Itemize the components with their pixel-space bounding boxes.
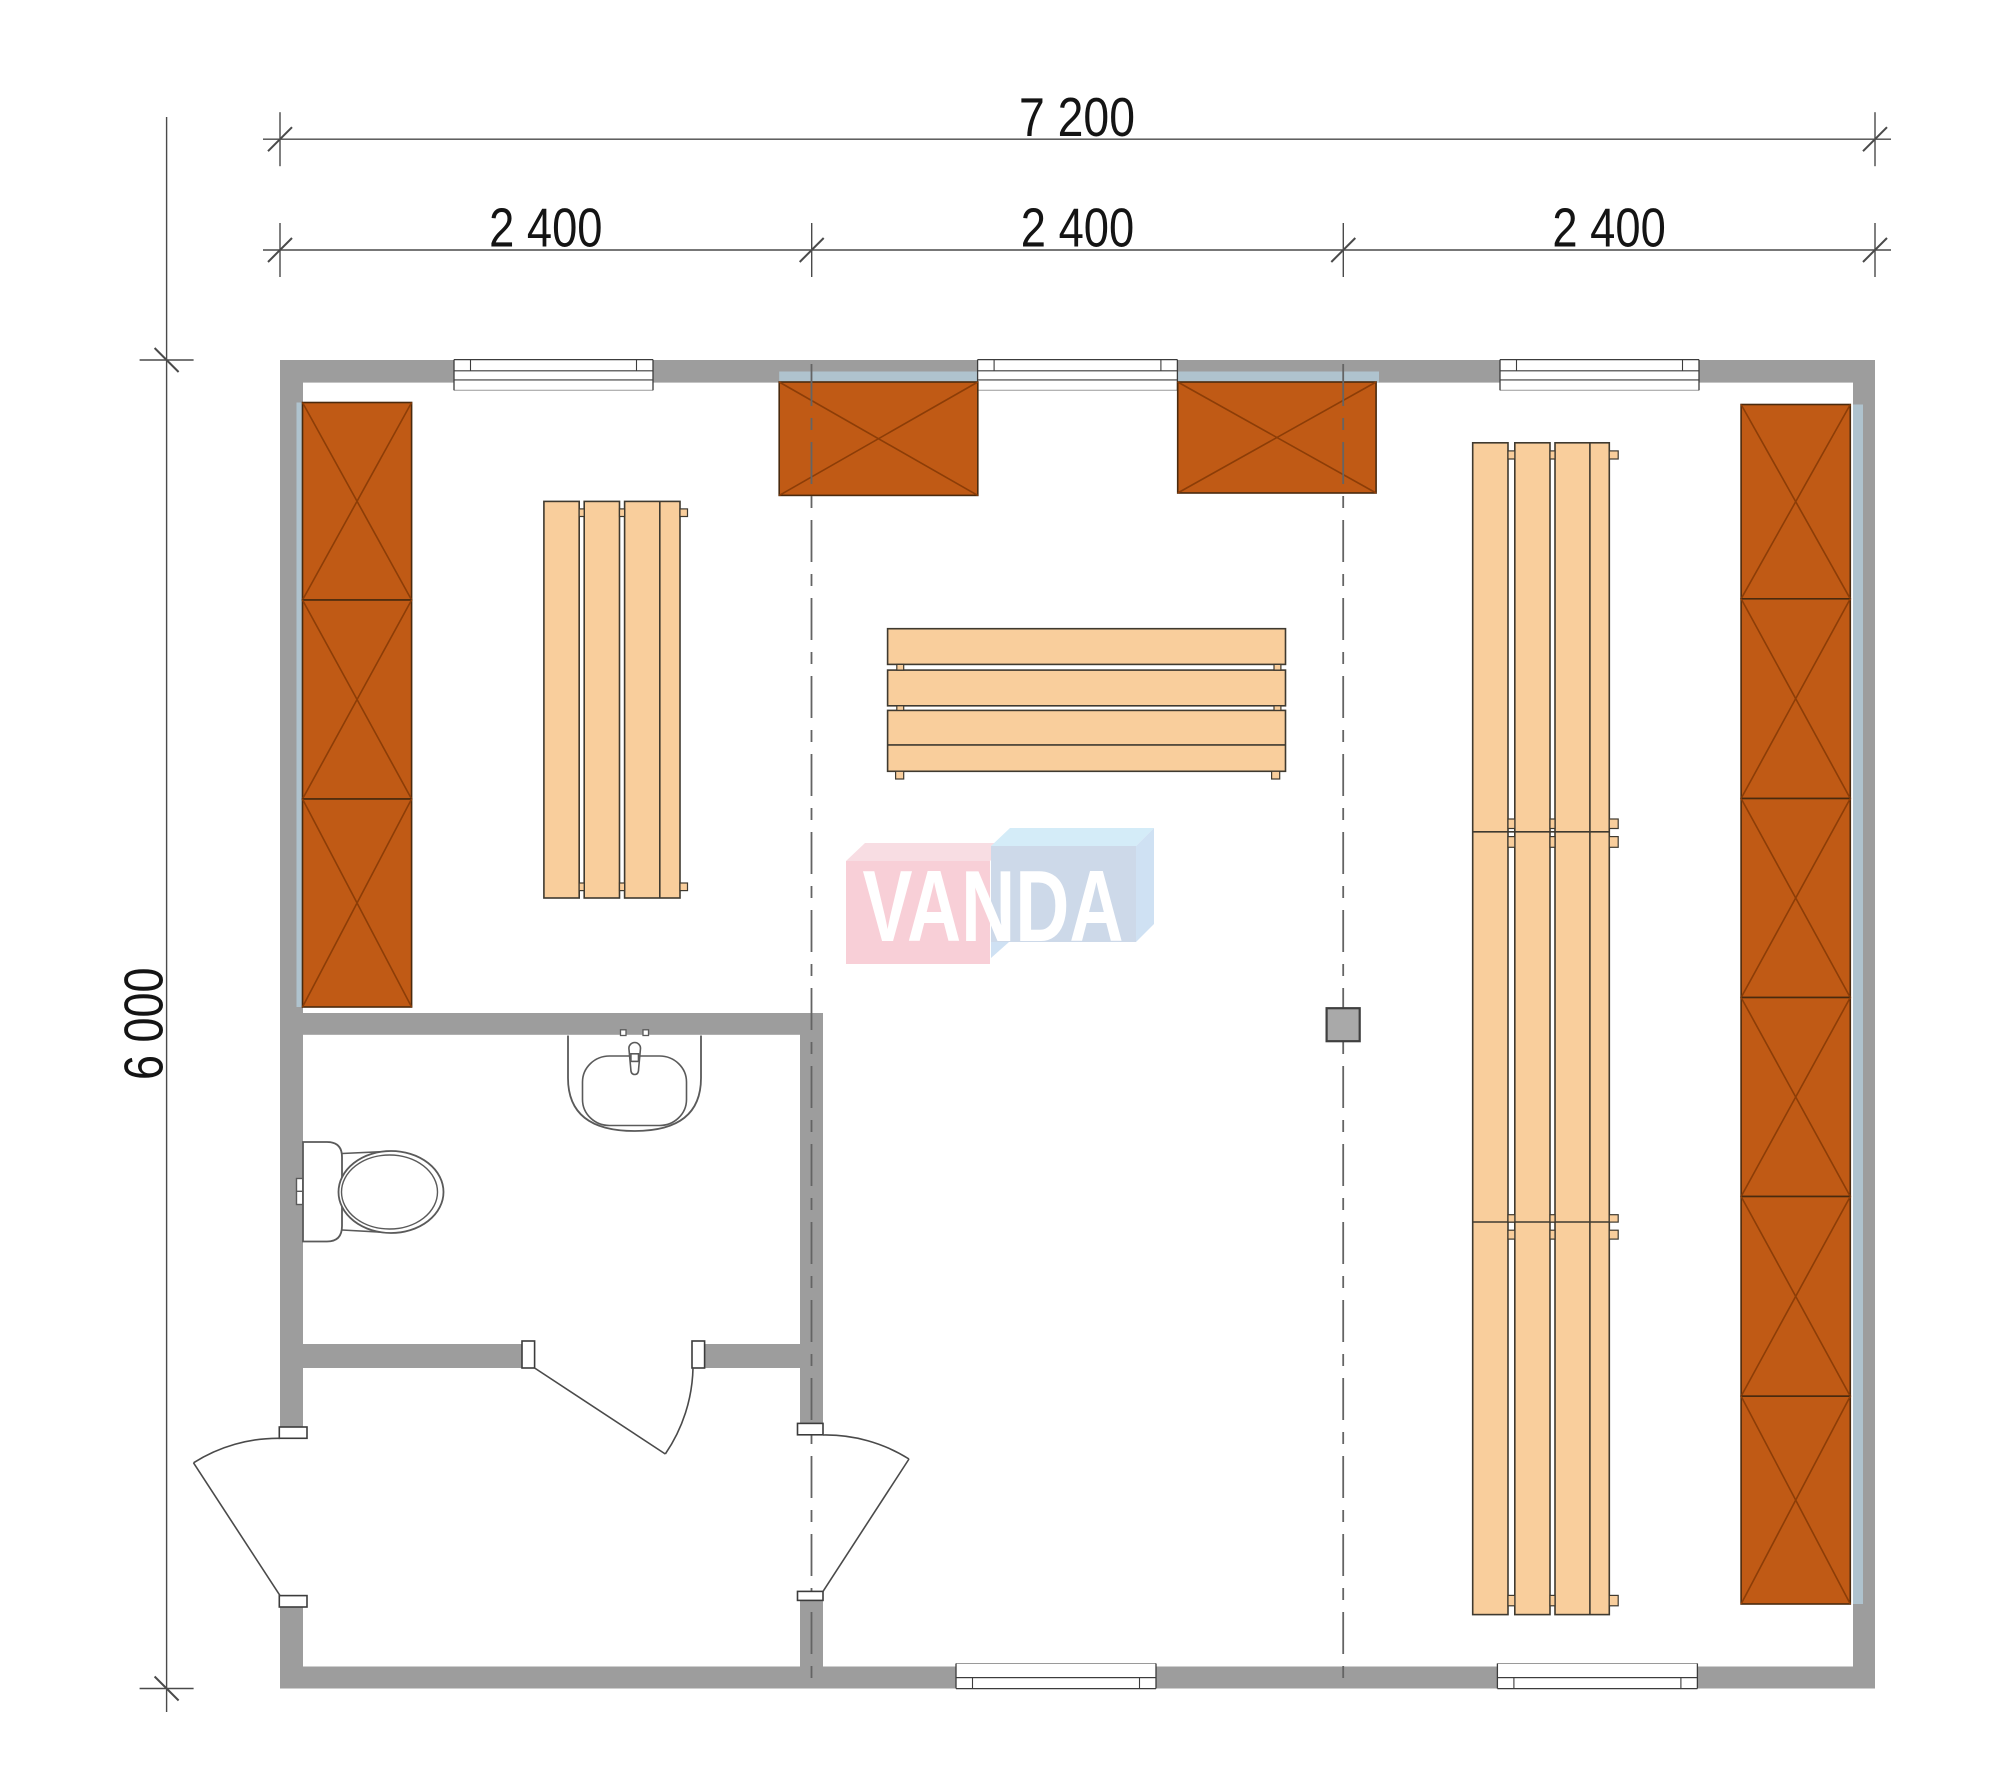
svg-text:VANDA: VANDA (863, 851, 1124, 963)
svg-text:2 400: 2 400 (1021, 197, 1134, 259)
svg-text:7 200: 7 200 (1019, 86, 1135, 148)
svg-text:6 000: 6 000 (113, 967, 175, 1080)
svg-text:2 400: 2 400 (489, 197, 602, 259)
svg-text:2 400: 2 400 (1552, 197, 1665, 259)
